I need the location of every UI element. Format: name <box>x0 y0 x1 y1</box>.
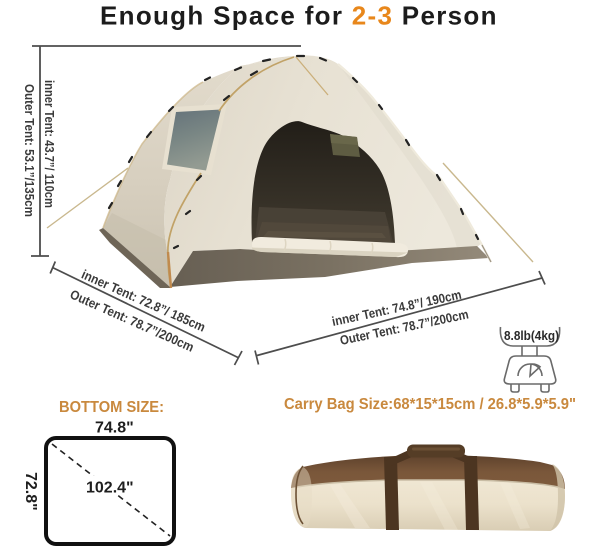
svg-text:8.8lb(4kg): 8.8lb(4kg) <box>504 328 559 343</box>
svg-text:Outer Tent: 53.1”/135cm: Outer Tent: 53.1”/135cm <box>22 84 36 217</box>
svg-text:BOTTOM SIZE:: BOTTOM SIZE: <box>59 399 164 416</box>
svg-text:74.8": 74.8" <box>95 420 134 437</box>
svg-text:Enough Space for 2-3 Person: Enough Space for 2-3 Person <box>100 1 498 31</box>
svg-text:102.4": 102.4" <box>86 480 134 497</box>
svg-text:inner Tent: 43.7”/ 110cm: inner Tent: 43.7”/ 110cm <box>42 80 56 208</box>
svg-text:72.8": 72.8" <box>22 472 39 511</box>
svg-text:Carry Bag Size:68*15*15cm / 26: Carry Bag Size:68*15*15cm / 26.8*5.9*5.9… <box>284 396 576 413</box>
